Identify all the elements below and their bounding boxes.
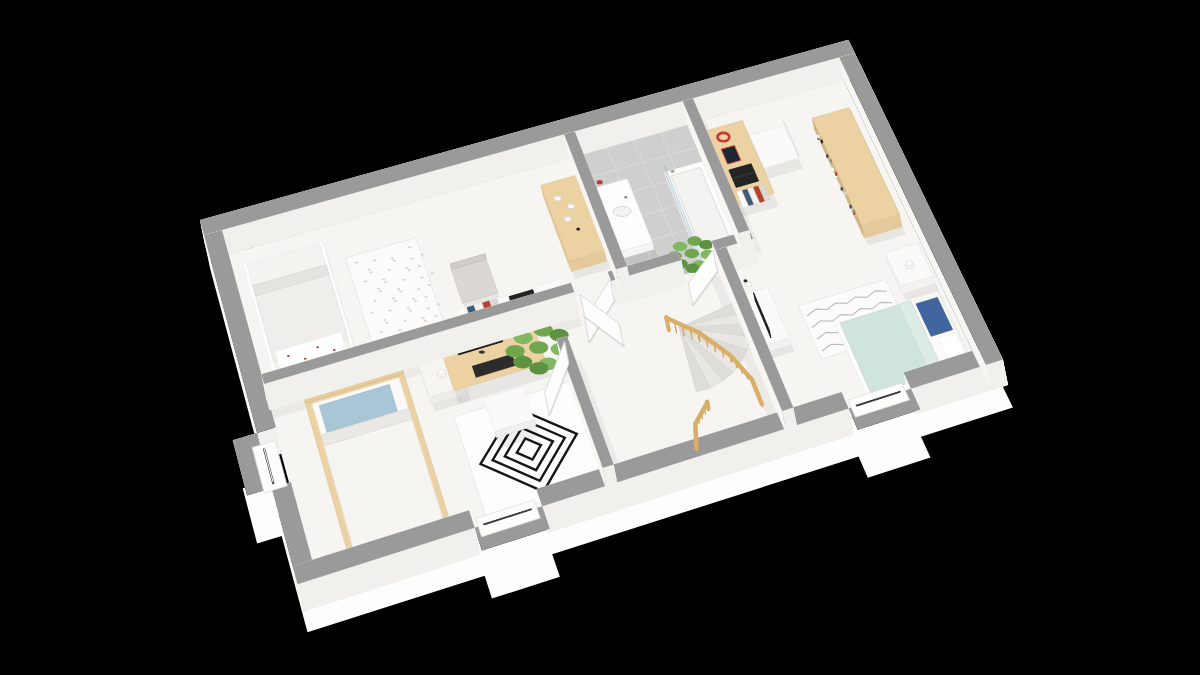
floor-plan-screenshot [0,0,1200,675]
cosmetics-red [597,180,603,185]
floor-plan-3d-render [0,0,1200,675]
